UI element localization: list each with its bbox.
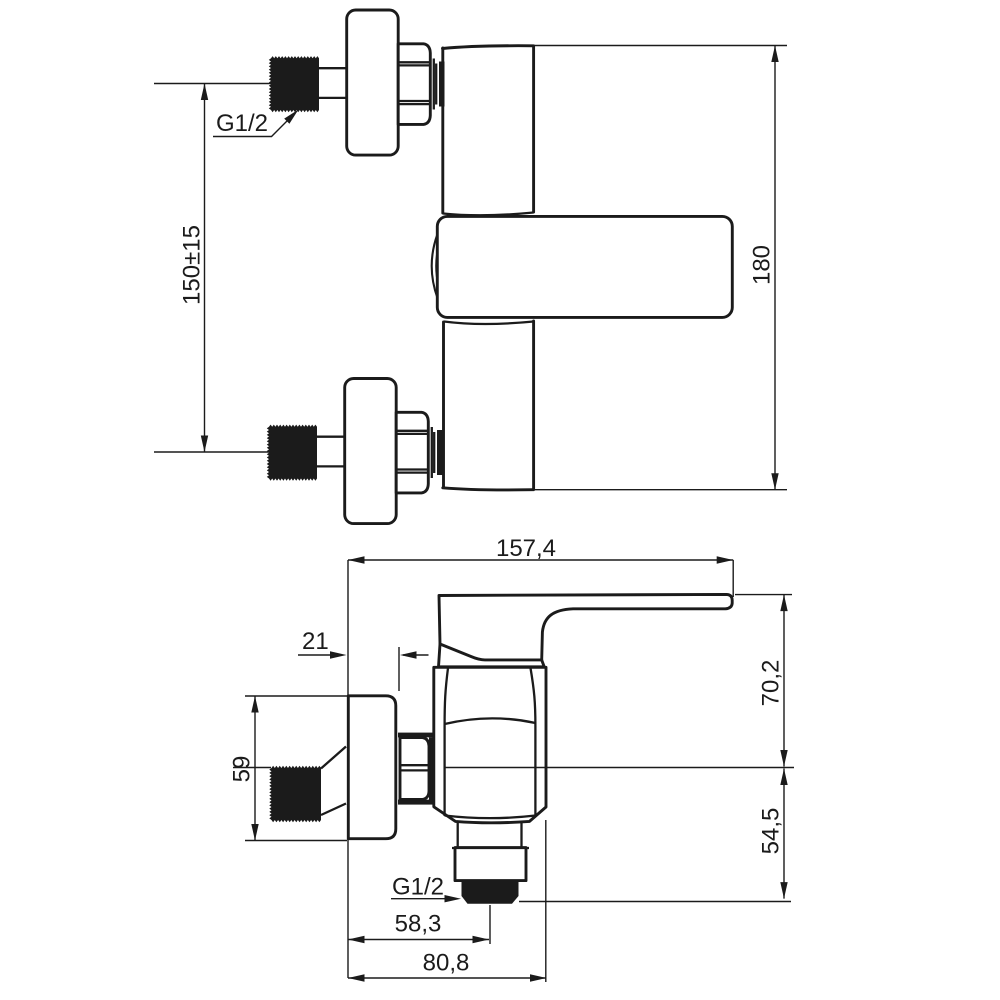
svg-text:21: 21 [302, 628, 329, 655]
svg-text:59: 59 [229, 756, 256, 783]
svg-text:180: 180 [749, 245, 776, 285]
svg-text:54,5: 54,5 [758, 808, 785, 855]
svg-text:G1/2: G1/2 [392, 874, 444, 901]
svg-text:157,4: 157,4 [496, 535, 556, 562]
svg-text:70,2: 70,2 [758, 660, 785, 707]
svg-text:58,3: 58,3 [395, 911, 442, 938]
svg-text:150±15: 150±15 [179, 225, 206, 305]
svg-text:G1/2: G1/2 [216, 110, 268, 137]
svg-text:80,8: 80,8 [423, 950, 470, 977]
